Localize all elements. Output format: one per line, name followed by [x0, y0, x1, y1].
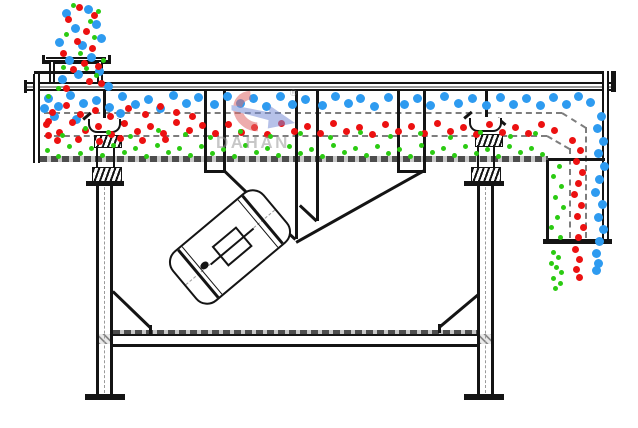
green-particle — [94, 73, 99, 78]
blue-particle — [262, 102, 271, 111]
green-particle — [46, 94, 51, 99]
red-particle — [49, 109, 56, 116]
red-particle — [173, 119, 180, 126]
red-particle — [92, 107, 99, 114]
red-particle — [569, 137, 576, 144]
blue-particle — [549, 93, 558, 102]
green-particle — [111, 143, 116, 148]
green-particle — [78, 51, 83, 56]
blue-particle — [118, 92, 127, 101]
green-particle — [166, 150, 171, 155]
green-particle — [92, 35, 97, 40]
green-particle — [122, 150, 127, 155]
green-particle — [397, 147, 402, 152]
red-particle — [125, 105, 132, 112]
red-particle — [575, 180, 582, 187]
blue-particle — [66, 91, 75, 100]
red-particle — [65, 16, 72, 23]
blue-particle — [79, 99, 88, 108]
red-particle — [572, 246, 579, 253]
blue-particle — [594, 213, 603, 222]
green-particle — [89, 146, 94, 151]
red-particle — [434, 120, 441, 127]
particle-layer — [0, 0, 638, 428]
red-particle — [134, 128, 141, 135]
green-particle — [276, 153, 281, 158]
red-particle — [76, 4, 83, 11]
red-particle — [107, 113, 114, 120]
red-particle — [96, 138, 103, 145]
blue-particle — [599, 137, 608, 146]
green-particle — [268, 134, 273, 139]
green-particle — [358, 130, 363, 135]
blue-particle — [482, 101, 491, 110]
red-particle — [573, 266, 580, 273]
red-particle — [83, 28, 90, 35]
red-particle — [369, 131, 376, 138]
green-particle — [128, 134, 133, 139]
green-particle — [56, 86, 61, 91]
green-particle — [558, 281, 563, 286]
green-particle — [84, 66, 89, 71]
red-particle — [162, 136, 169, 143]
blue-particle — [440, 92, 449, 101]
blue-particle — [144, 95, 153, 104]
green-particle — [100, 153, 105, 158]
green-particle — [556, 255, 561, 260]
green-particle — [386, 151, 391, 156]
red-particle — [343, 128, 350, 135]
red-particle — [189, 113, 196, 120]
green-particle — [496, 154, 501, 159]
red-particle — [525, 130, 532, 137]
blue-particle — [301, 95, 310, 104]
green-particle — [133, 146, 138, 151]
red-particle — [45, 132, 52, 139]
green-particle — [83, 126, 88, 131]
green-particle — [388, 134, 393, 139]
blue-particle — [276, 92, 285, 101]
red-particle — [486, 121, 493, 128]
blue-particle — [370, 102, 379, 111]
green-particle — [208, 135, 213, 140]
blue-particle — [104, 82, 113, 91]
green-particle — [210, 151, 215, 156]
red-particle — [157, 103, 164, 110]
red-particle — [98, 80, 105, 87]
red-particle — [199, 122, 206, 129]
blue-particle — [55, 38, 64, 47]
blue-particle — [400, 100, 409, 109]
green-particle — [554, 265, 559, 270]
blue-particle — [522, 94, 531, 103]
blue-particle — [344, 99, 353, 108]
blue-particle — [509, 100, 518, 109]
red-particle — [212, 130, 219, 137]
green-particle — [238, 129, 243, 134]
blue-particle — [92, 96, 101, 105]
green-particle — [156, 128, 161, 133]
blue-particle — [194, 93, 203, 102]
red-particle — [89, 45, 96, 52]
green-particle — [508, 134, 513, 139]
green-particle — [557, 164, 562, 169]
green-particle — [199, 144, 204, 149]
blue-particle — [105, 103, 114, 112]
red-particle — [117, 135, 124, 142]
red-particle — [538, 121, 545, 128]
green-particle — [71, 3, 76, 8]
green-particle — [551, 174, 556, 179]
green-particle — [418, 131, 423, 136]
green-particle — [408, 154, 413, 159]
blue-particle — [182, 99, 191, 108]
green-particle — [144, 154, 149, 159]
blue-particle — [58, 75, 67, 84]
blue-particle — [97, 34, 106, 43]
green-particle — [155, 143, 160, 148]
blue-particle — [591, 188, 600, 197]
red-particle — [447, 128, 454, 135]
green-particle — [106, 130, 111, 135]
red-particle — [578, 202, 585, 209]
green-particle — [88, 19, 93, 24]
blue-particle — [594, 149, 603, 158]
red-particle — [70, 66, 77, 73]
red-particle — [77, 111, 84, 118]
red-particle — [43, 121, 50, 128]
blue-particle — [331, 92, 340, 101]
red-particle — [576, 256, 583, 263]
green-particle — [56, 154, 61, 159]
red-particle — [54, 137, 61, 144]
green-particle — [551, 276, 556, 281]
red-particle — [551, 127, 558, 134]
green-particle — [540, 152, 545, 157]
green-particle — [533, 131, 538, 136]
green-particle — [441, 146, 446, 151]
green-particle — [553, 195, 558, 200]
red-particle — [139, 137, 146, 144]
red-particle — [278, 120, 285, 127]
green-particle — [485, 147, 490, 152]
green-particle — [518, 150, 523, 155]
green-particle — [507, 144, 512, 149]
green-particle — [61, 65, 66, 70]
green-particle — [549, 261, 554, 266]
green-particle — [287, 144, 292, 149]
blue-particle — [384, 93, 393, 102]
blue-particle — [598, 200, 607, 209]
red-particle — [86, 78, 93, 85]
green-particle — [177, 146, 182, 151]
green-particle — [67, 144, 72, 149]
red-particle — [63, 102, 70, 109]
green-particle — [298, 151, 303, 156]
green-particle — [101, 58, 106, 63]
red-particle — [95, 63, 102, 70]
blue-particle — [536, 101, 545, 110]
green-particle — [353, 146, 358, 151]
blue-particle — [413, 94, 422, 103]
green-particle — [309, 147, 314, 152]
blue-particle — [71, 24, 80, 33]
blue-particle — [454, 99, 463, 108]
red-particle — [460, 124, 467, 131]
green-particle — [561, 205, 566, 210]
red-particle — [499, 129, 506, 136]
red-particle — [579, 169, 586, 176]
red-particle — [317, 130, 324, 137]
blue-particle — [592, 249, 601, 258]
red-particle — [382, 121, 389, 128]
green-particle — [430, 150, 435, 155]
green-particle — [96, 9, 101, 14]
blue-particle — [318, 101, 327, 110]
green-particle — [265, 146, 270, 151]
blue-particle — [40, 104, 49, 113]
blue-particle — [210, 100, 219, 109]
blue-particle — [574, 92, 583, 101]
red-particle — [121, 120, 128, 127]
green-particle — [328, 135, 333, 140]
blue-particle — [592, 266, 601, 275]
green-particle — [549, 225, 554, 230]
red-particle — [580, 224, 587, 231]
red-particle — [576, 274, 583, 281]
green-particle — [254, 150, 259, 155]
red-particle — [395, 128, 402, 135]
blue-particle — [593, 124, 602, 133]
red-particle — [160, 130, 167, 137]
green-particle — [558, 235, 563, 240]
green-particle — [551, 250, 556, 255]
green-particle — [375, 144, 380, 149]
green-particle — [478, 130, 483, 135]
red-particle — [74, 38, 81, 45]
blue-particle — [116, 109, 125, 118]
green-particle — [463, 144, 468, 149]
vibrating-screen-diagram: ® DAHAN — [0, 0, 638, 428]
blue-particle — [562, 100, 571, 109]
green-particle — [559, 270, 564, 275]
green-particle — [64, 32, 69, 37]
blue-particle — [87, 53, 96, 62]
blue-particle — [223, 92, 232, 101]
green-particle — [188, 153, 193, 158]
red-particle — [304, 123, 311, 130]
blue-particle — [356, 94, 365, 103]
red-particle — [63, 85, 70, 92]
blue-particle — [597, 112, 606, 121]
red-particle — [69, 119, 76, 126]
red-particle — [330, 120, 337, 127]
green-particle — [364, 153, 369, 158]
red-particle — [173, 109, 180, 116]
red-particle — [512, 124, 519, 131]
blue-particle — [496, 93, 505, 102]
green-particle — [331, 143, 336, 148]
green-particle — [553, 286, 558, 291]
green-particle — [298, 131, 303, 136]
green-particle — [320, 154, 325, 159]
green-particle — [559, 184, 564, 189]
blue-particle — [600, 162, 609, 171]
blue-particle — [65, 56, 74, 65]
blue-particle — [468, 94, 477, 103]
red-particle — [291, 128, 298, 135]
blue-particle — [595, 175, 604, 184]
green-particle — [419, 143, 424, 148]
blue-particle — [595, 237, 604, 246]
red-particle — [573, 158, 580, 165]
red-particle — [571, 191, 578, 198]
red-particle — [95, 123, 102, 130]
red-particle — [75, 136, 82, 143]
red-particle — [142, 111, 149, 118]
red-particle — [577, 147, 584, 154]
blue-particle — [236, 99, 245, 108]
green-particle — [448, 135, 453, 140]
blue-particle — [599, 225, 608, 234]
blue-particle — [169, 91, 178, 100]
blue-particle — [586, 98, 595, 107]
green-particle — [452, 153, 457, 158]
blue-particle — [92, 20, 101, 29]
red-particle — [575, 234, 582, 241]
green-particle — [243, 143, 248, 148]
blue-particle — [288, 100, 297, 109]
red-particle — [60, 50, 67, 57]
green-particle — [60, 133, 65, 138]
green-particle — [183, 132, 188, 137]
red-particle — [408, 123, 415, 130]
green-particle — [474, 151, 479, 156]
blue-particle — [426, 101, 435, 110]
green-particle — [45, 148, 50, 153]
green-particle — [78, 151, 83, 156]
green-particle — [232, 154, 237, 159]
red-particle — [147, 123, 154, 130]
blue-particle — [131, 100, 140, 109]
green-particle — [529, 146, 534, 151]
blue-particle — [249, 94, 258, 103]
green-particle — [555, 215, 560, 220]
green-particle — [342, 150, 347, 155]
red-particle — [251, 124, 258, 131]
green-particle — [221, 147, 226, 152]
red-particle — [225, 121, 232, 128]
red-particle — [574, 213, 581, 220]
